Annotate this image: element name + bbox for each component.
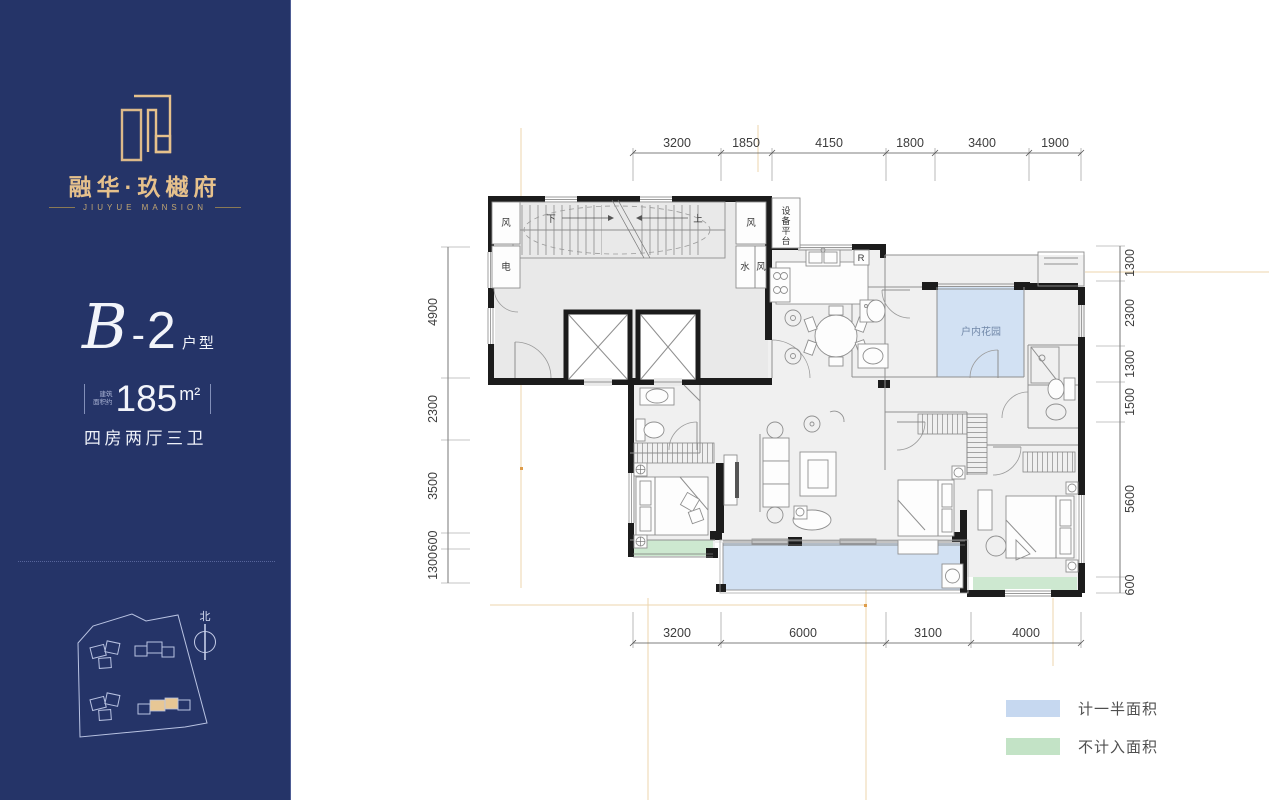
- dim-right-4: 5600: [1123, 485, 1137, 513]
- dim-left-2: 3500: [426, 472, 440, 500]
- dim-left-1: 2300: [426, 395, 440, 423]
- dim-bottom-0: 3200: [663, 626, 691, 640]
- dim-bottom-3: 4000: [1012, 626, 1040, 640]
- stair-up-label: 上: [693, 214, 703, 225]
- area-prefix: 建筑 面积约: [93, 391, 113, 407]
- dim-right-2: 1300: [1123, 350, 1137, 378]
- bedroom-left: [634, 443, 714, 548]
- dim-left-4: 1300: [426, 552, 440, 580]
- dims-bottom: 3200 6000 3100 4000: [630, 612, 1084, 648]
- legend-row-half-area: 计一半面积: [1006, 698, 1158, 719]
- indoor-garden-label: 户内花园: [961, 325, 1001, 338]
- equipment-platform-label: 设备平台: [774, 203, 798, 249]
- sidebar-divider: [18, 561, 275, 562]
- shaft-wind-2-label: 风: [746, 218, 756, 229]
- dim-top-1: 1850: [732, 136, 760, 150]
- area-prefix-line1: 建筑: [93, 391, 113, 399]
- room-layout-text: 四房两厅三卫: [84, 424, 207, 449]
- area-legend: 计一半面积 不计入面积: [1006, 698, 1158, 774]
- dim-bottom-2: 3100: [914, 626, 942, 640]
- shaft-electric-label: 电: [501, 261, 511, 273]
- area-bar-right: [210, 384, 211, 414]
- dim-right-1: 2300: [1123, 299, 1137, 327]
- unit-area: 建筑 面积约 185 m²: [84, 380, 211, 417]
- dim-top-2: 4150: [815, 136, 843, 150]
- dim-top-4: 3400: [968, 136, 996, 150]
- brand-subtitle-row: JIUYUE MANSION: [0, 203, 290, 212]
- dim-top-3: 1800: [896, 136, 924, 150]
- unit-name: B - 2 户型: [82, 296, 216, 358]
- dim-bottom-1: 6000: [789, 626, 817, 640]
- legend-swatch-excluded-area: [1006, 738, 1060, 755]
- brand-subtitle: JIUYUE MANSION: [83, 203, 207, 212]
- excluded-strip-right: [973, 577, 1077, 591]
- brand-logo-icon: [108, 90, 192, 166]
- compass: 北: [195, 610, 216, 660]
- dim-left-3: 600: [426, 531, 440, 552]
- dim-right-3: 1500: [1123, 388, 1137, 416]
- area-bar-left: [84, 384, 85, 414]
- legend-row-excluded-area: 不计入面积: [1006, 736, 1158, 757]
- shaft-wind-3-label: 风: [756, 262, 766, 273]
- unit-letter: B: [82, 296, 128, 358]
- dim-right-5: 600: [1123, 575, 1137, 596]
- legend-label-half-area: 计一半面积: [1078, 698, 1158, 719]
- floorplan-poster: 融华·玖樾府 JIUYUE MANSION B - 2 户型 建筑 面积约 18…: [0, 0, 1269, 800]
- siteplan-map: 北: [55, 600, 240, 765]
- dims-left: 4900 2300 3500 600 1300: [426, 247, 470, 583]
- unit-number: 2: [147, 305, 176, 357]
- shaft-water-label: 水: [740, 261, 750, 273]
- dim-right-0: 1300: [1123, 249, 1137, 277]
- fridge-label: R: [858, 253, 865, 264]
- elevators: [566, 312, 698, 386]
- dim-top-0: 3200: [663, 136, 691, 150]
- dims-right: 1300 2300 1300 1500 5600 600: [1096, 246, 1137, 595]
- site-boundary: [78, 614, 207, 737]
- subtitle-rule-left: [49, 207, 75, 208]
- dim-left-0: 4900: [426, 298, 440, 326]
- window-master-right: [1077, 495, 1086, 563]
- stair-down-label: 下: [546, 214, 556, 225]
- window-core-left-2: [486, 308, 495, 344]
- subtitle-rule-right: [215, 207, 241, 208]
- window-master-bottom: [1005, 589, 1051, 598]
- site-highlighted-buildings: [150, 698, 178, 711]
- dims-top: 3200 1850 4150 1800 3400 1900: [630, 136, 1084, 181]
- shaft-wind-1-label: 风: [501, 218, 511, 229]
- area-prefix-line2: 面积约: [93, 399, 113, 407]
- brand-sidebar: 融华·玖樾府 JIUYUE MANSION B - 2 户型 建筑 面积约 18…: [0, 0, 291, 800]
- brand-title: 融华·玖樾府: [0, 168, 290, 202]
- area-unit: m²: [179, 380, 200, 405]
- compass-north-label: 北: [200, 610, 211, 623]
- unit-type-suffix: 户型: [182, 332, 216, 353]
- dim-top-5: 1900: [1041, 136, 1069, 150]
- legend-label-excluded-area: 不计入面积: [1078, 736, 1158, 757]
- legend-swatch-half-area: [1006, 700, 1060, 717]
- unit-dash: -: [132, 313, 145, 358]
- area-value: 185: [116, 380, 178, 417]
